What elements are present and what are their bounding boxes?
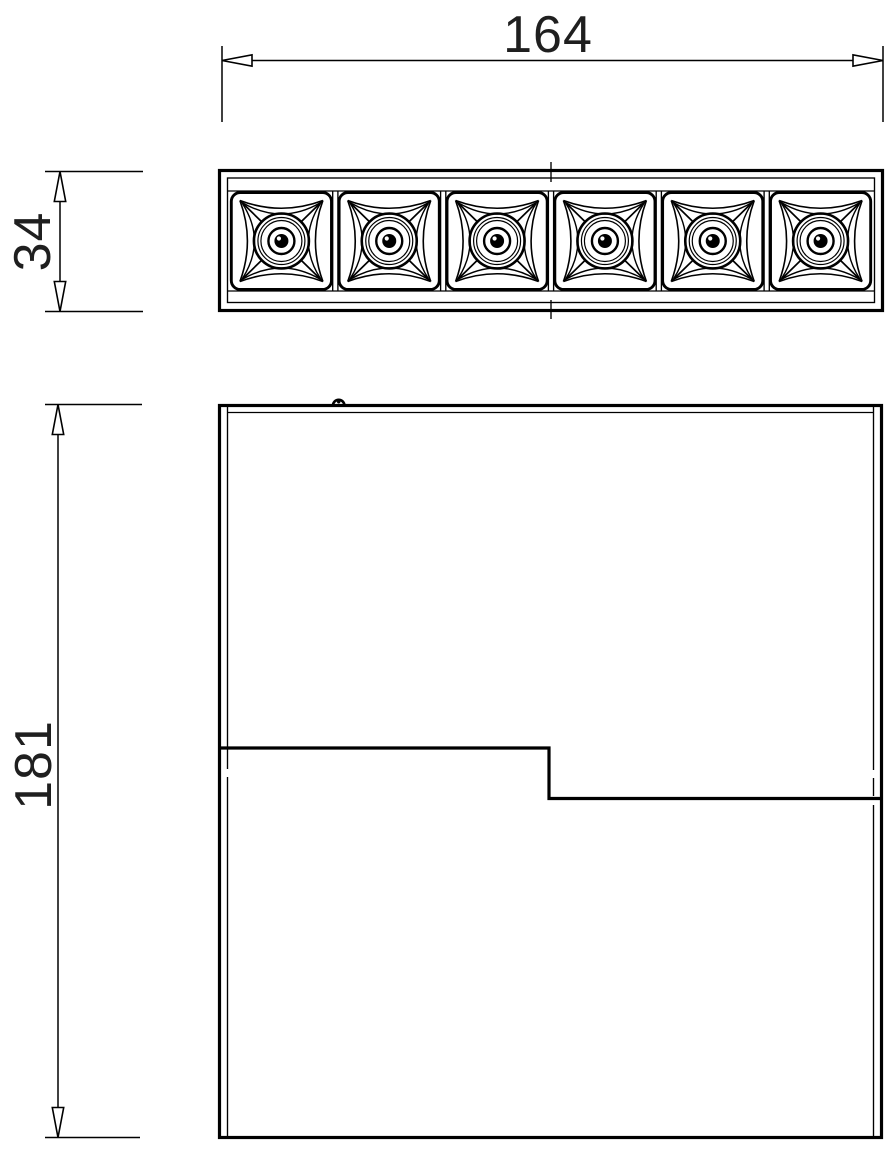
led-cell (447, 193, 547, 290)
reflector-arc (315, 201, 323, 282)
arrowhead-down-icon (54, 282, 65, 312)
led-cell-array (231, 191, 870, 291)
dimension-label-module-height: 34 (4, 212, 62, 272)
led-chip-highlight (708, 236, 712, 240)
dimension-overall-width: 164 (222, 6, 883, 122)
arrowhead-up-icon (52, 405, 63, 435)
led-chip-icon (706, 234, 720, 248)
stepped-parting-line (221, 748, 880, 799)
led-chip-icon (274, 234, 288, 248)
reflector-arc (456, 201, 464, 282)
reflector-arc (423, 201, 431, 282)
led-chip-icon (382, 234, 396, 248)
led-chip-highlight (816, 236, 820, 240)
led-cell (771, 193, 871, 290)
reflector-arc (671, 201, 679, 282)
arrowhead-up-icon (54, 172, 65, 202)
reflector-arc (639, 201, 647, 282)
led-chip-icon (490, 234, 504, 248)
reflector-arc (348, 201, 356, 282)
drawing-canvas: 164 34 181 (0, 0, 895, 1157)
led-cell (663, 193, 763, 290)
reflector-arc (531, 201, 539, 282)
dimension-label-width: 164 (503, 6, 593, 64)
arrowhead-right-icon (853, 55, 883, 66)
module-inner-frame (228, 178, 875, 303)
reflector-arc (747, 201, 755, 282)
dimension-label-housing-height: 181 (5, 720, 63, 810)
reflector-arc (563, 201, 571, 282)
led-chip-highlight (385, 236, 389, 240)
reflector-arc (855, 201, 863, 282)
led-chip-highlight (277, 236, 281, 240)
top-view-led-module (220, 162, 883, 319)
arrowhead-down-icon (52, 1108, 63, 1138)
arrowhead-left-icon (222, 55, 252, 66)
led-cell (231, 193, 331, 290)
led-chip-highlight (492, 236, 496, 240)
reflector-arc (240, 201, 248, 282)
led-chip-highlight (600, 236, 604, 240)
led-cell (555, 193, 655, 290)
led-chip-icon (598, 234, 612, 248)
dimension-module-height: 34 (4, 172, 143, 312)
led-chip-icon (814, 234, 828, 248)
dimension-housing-height: 181 (5, 405, 142, 1138)
mounting-tab-hole (337, 400, 340, 403)
reflector-arc (779, 201, 787, 282)
front-view-housing (220, 400, 882, 1138)
led-cell (339, 193, 439, 290)
